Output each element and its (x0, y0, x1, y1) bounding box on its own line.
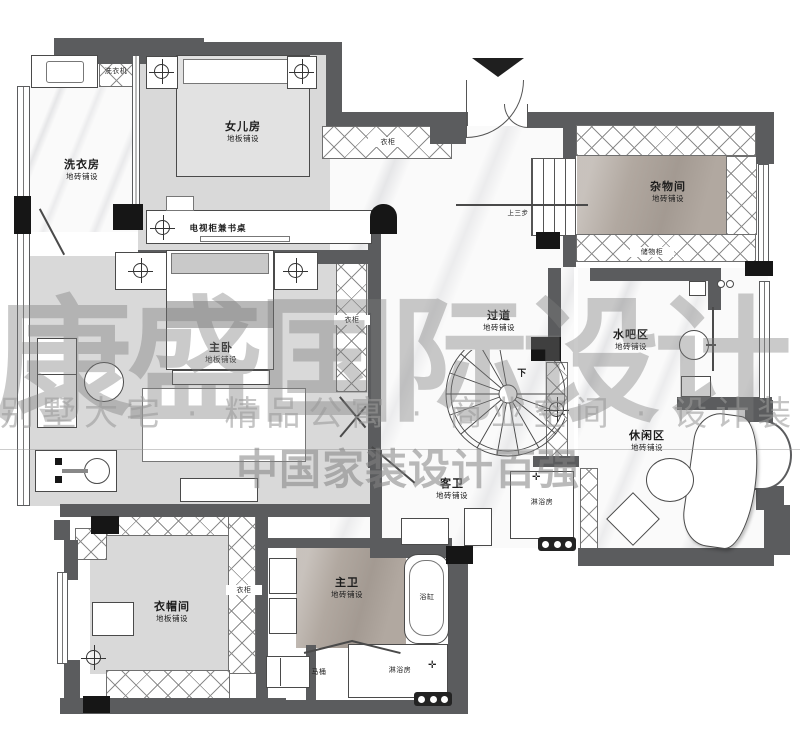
rug (142, 388, 306, 462)
wall (66, 42, 338, 55)
basin-tap (706, 344, 716, 346)
partition-wall (132, 55, 140, 209)
label-washer: 洗衣机 (96, 66, 136, 76)
bed-pillows (171, 253, 269, 274)
measure-line (456, 204, 588, 206)
room-label-storage: 杂物间 地砖铺设 (623, 180, 713, 203)
room-label-corridor: 过道 地砖铺设 (454, 309, 544, 332)
room-label-guest-bath: 客卫 地砖铺设 (407, 477, 497, 500)
wall (764, 505, 790, 555)
counter-edge (712, 307, 714, 371)
column (446, 546, 473, 564)
entry-arrow-icon (472, 58, 524, 77)
room-label-leisure: 休闲区 地砖铺设 (602, 429, 692, 452)
wall (430, 114, 466, 144)
tall-cabinet (37, 338, 77, 428)
label-shower-guest: 淋浴房 (520, 497, 564, 507)
wall (448, 563, 468, 714)
ball-chair (84, 362, 124, 402)
label-bathtub: 浴缸 (407, 592, 447, 602)
vanity-knob (55, 458, 62, 465)
label-stairs-down: 下 (512, 366, 532, 379)
window (759, 281, 770, 399)
wall (370, 450, 382, 550)
wall (756, 112, 774, 164)
label-shower-master: 淋浴房 (378, 665, 422, 675)
desk-stool (166, 196, 194, 211)
round-basin (679, 330, 709, 360)
floor-plan: ✛ ✛ 洗衣房 地砖铺设 女儿房 地板铺设 杂物间 地砖铺设 主卧 地板铺设 过… (0, 0, 800, 730)
storage-cabinet-top (576, 125, 756, 156)
ceiling-target-icon (86, 650, 101, 665)
wall (64, 660, 80, 704)
vanity-knob (55, 476, 62, 483)
ceiling-target-icon (288, 263, 303, 278)
shower-drain (414, 692, 452, 706)
storage-cabinet-right (726, 156, 757, 235)
column (91, 516, 119, 534)
stool-handle (62, 469, 88, 473)
room-label-cloakroom: 衣帽间 地板铺设 (127, 600, 217, 623)
cloakroom-cabinet-bottom (106, 670, 230, 700)
wall (368, 226, 381, 468)
bath-sink (269, 558, 297, 594)
wall (590, 268, 720, 281)
column (370, 204, 397, 234)
wall (54, 520, 70, 540)
column (531, 337, 561, 361)
wall (574, 112, 774, 125)
bar-burner (717, 280, 725, 288)
bar-sink (689, 281, 706, 296)
window (17, 86, 30, 506)
guest-bath-vanity (401, 518, 449, 545)
bed-bench (172, 370, 270, 385)
entry-steps (531, 158, 576, 236)
label-wardrobe-corridor: 衣柜 (368, 137, 408, 147)
column (83, 696, 110, 713)
room-label-master: 主卧 地板铺设 (176, 341, 266, 364)
round-table (646, 458, 694, 502)
column (745, 261, 773, 276)
ceiling-target-icon (294, 64, 309, 79)
column (536, 232, 560, 249)
label-wardrobe-cloak: 衣柜 (226, 585, 262, 595)
room-label-daughter: 女儿房 地板铺设 (198, 120, 288, 143)
bed-blanket (167, 301, 273, 328)
wall (708, 268, 721, 310)
wall (548, 268, 561, 340)
window (758, 164, 769, 263)
sprinkler-icon: ✛ (428, 660, 437, 671)
toilet-tank-line (280, 658, 281, 686)
label-storage-cabinet: 储物柜 (630, 247, 674, 257)
corner-shelf (681, 376, 711, 397)
label-toilet: 马桶 (299, 667, 339, 677)
ceiling-target-icon (133, 263, 148, 278)
shower-drain (538, 537, 576, 551)
ceiling-target-icon (154, 64, 169, 79)
wall (578, 548, 774, 566)
ceiling-target-icon (549, 402, 564, 417)
laundry-sink-basin (46, 61, 84, 83)
label-wardrobe-master: 衣柜 (334, 315, 370, 325)
low-dresser (180, 478, 258, 502)
column (113, 204, 143, 230)
room-label-master-bath: 主卫 地砖铺设 (302, 576, 392, 599)
cabinet-divider (38, 374, 76, 375)
column (14, 196, 31, 234)
bed-pillows (183, 59, 303, 84)
guest-bath-cabinet (464, 508, 492, 546)
room-label-waterbar: 水吧区 地砖铺设 (586, 328, 676, 351)
shower-side-cabinet (580, 468, 598, 550)
window (57, 572, 68, 664)
label-steps-up: 上三步 (498, 207, 538, 217)
desk-keyboard (200, 236, 290, 242)
door-arc (504, 104, 528, 128)
label-tv-desk: 电视柜兼书桌 (168, 222, 268, 234)
sprinkler-icon: ✛ (532, 472, 541, 483)
bath-sink (269, 598, 297, 634)
bar-burner (726, 280, 734, 288)
room-label-laundry: 洗衣房 地砖铺设 (37, 158, 127, 181)
